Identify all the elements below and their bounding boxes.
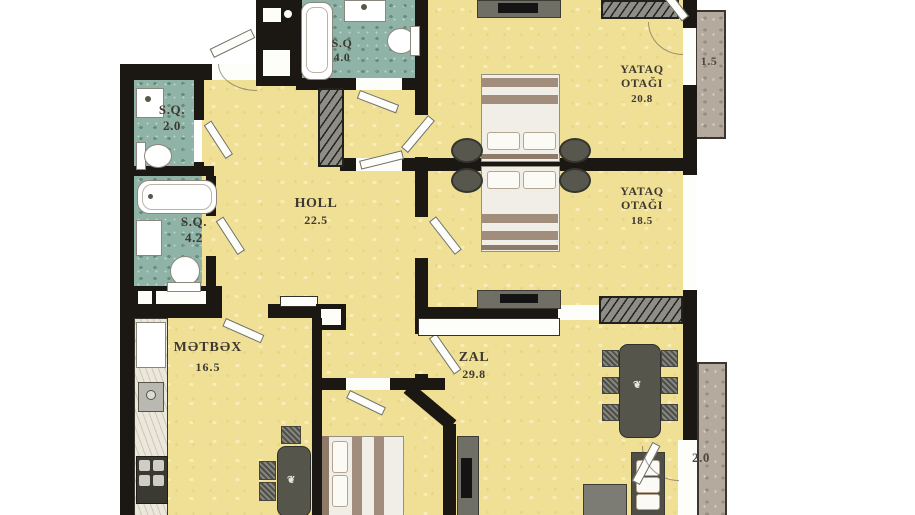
sofa-cushion [636, 494, 660, 510]
chair-icon [259, 482, 276, 501]
room-label-bedroom-mid: YATAQ OTAĞI 18.5 [606, 184, 678, 228]
room-area: 20.8 [606, 93, 678, 106]
room-area: 29.8 [444, 367, 504, 381]
pillow-icon [487, 171, 520, 189]
room-label-sq20: S.Q. 2.0 [148, 102, 196, 133]
bed-headboard [481, 154, 558, 159]
room-name: MƏTBƏX [158, 340, 258, 357]
cabinet-icon [583, 484, 627, 515]
wardrobe-icon [599, 296, 683, 324]
nightstand-icon [451, 168, 483, 193]
room-name: S.Q [318, 36, 366, 50]
wall-ledge [418, 318, 560, 336]
wall [120, 64, 134, 515]
wall [415, 90, 428, 115]
room-name: S.Q. [168, 214, 220, 230]
small-bedroom-door-opening [346, 378, 390, 390]
toilet-icon [144, 144, 172, 168]
room-area: 18.5 [606, 215, 678, 228]
wall [443, 424, 456, 515]
burner-icon [153, 475, 164, 486]
sink-drain [146, 390, 156, 400]
bedroom-mid-south-door-opening [558, 305, 600, 320]
balcony-top-floor [695, 10, 726, 139]
dining-table-icon [619, 344, 661, 438]
chair-icon [602, 350, 619, 367]
balcony-area: 2.0 [684, 450, 718, 466]
vent-circle-icon [284, 10, 292, 18]
room-label-holl: HOLL 22.5 [282, 196, 350, 227]
pocket-door-panel [280, 296, 318, 307]
shaft-niche [138, 291, 152, 304]
bed-blanket-band [481, 231, 558, 240]
room-label-sq42: S.Q. 4.2 [168, 214, 220, 245]
balcony-top-label: 1.5 [694, 54, 724, 68]
tv-icon [498, 3, 538, 13]
room-label-kitchen: MƏTBƏX 16.5 [158, 340, 258, 374]
pillow-icon [523, 171, 556, 189]
room-name: ZAL [444, 350, 504, 367]
wall [683, 290, 697, 440]
chair-icon [661, 350, 678, 367]
nightstand-icon [559, 138, 591, 163]
bed-blanket-band [481, 214, 558, 223]
bed-blanket-band [481, 95, 558, 104]
room-label-bedroom-top: YATAQ OTAĞI 20.8 [606, 62, 678, 106]
table-centerpiece-icon: ❦ [633, 380, 641, 391]
chair-icon [661, 377, 678, 394]
nightstand-icon [451, 138, 483, 163]
pillow-icon [332, 475, 348, 507]
bed-blanket-band [374, 436, 384, 515]
wardrobe-icon [318, 88, 344, 167]
room-name: S.Q. [148, 102, 196, 118]
balcony-bottom-floor [697, 362, 727, 515]
balcony-bottom-label: 2.0 [684, 450, 718, 466]
shaft-niche [263, 50, 290, 76]
room-area: 4.0 [318, 50, 366, 64]
room-label-sq40: S.Q 4.0 [318, 36, 366, 65]
burner-icon [139, 460, 150, 471]
tv-icon [461, 458, 472, 498]
sq40-door-opening [356, 78, 402, 90]
room-area: 22.5 [282, 213, 350, 227]
room-label-zal: ZAL 29.8 [444, 350, 504, 381]
wall [134, 166, 214, 176]
chair-icon [602, 404, 619, 421]
room-name-line1: YATAQ [606, 184, 678, 198]
bed-headboard [322, 436, 329, 515]
pillow-icon [523, 132, 556, 150]
toilet-tank [167, 282, 201, 292]
sink-drain [361, 4, 367, 10]
chair-icon [661, 404, 678, 421]
room-name-line2: OTAĞI [606, 198, 678, 212]
chair-icon [281, 426, 301, 444]
room-name-line2: OTAĞI [606, 76, 678, 90]
nightstand-icon [559, 168, 591, 193]
chair-icon [259, 461, 276, 480]
burner-icon [139, 475, 150, 486]
pillow-icon [332, 441, 348, 473]
bathtub-drain [148, 194, 153, 199]
bed-blanket-band [352, 436, 362, 515]
pocket-door-panel [321, 309, 341, 325]
bedroom-mid-window [684, 175, 696, 290]
toilet-tank [410, 26, 420, 56]
burner-icon [153, 460, 164, 471]
chair-icon [602, 377, 619, 394]
shaft-niche [263, 8, 281, 22]
room-area: 4.2 [168, 230, 220, 246]
pillow-icon [487, 132, 520, 150]
room-name: HOLL [282, 196, 350, 213]
balcony-area: 1.5 [694, 54, 724, 68]
table-centerpiece-icon: ❦ [287, 475, 295, 486]
wall [312, 318, 322, 515]
wall [206, 256, 216, 290]
room-name-line1: YATAQ [606, 62, 678, 76]
room-area: 16.5 [158, 360, 258, 374]
floor-plan: ❦ ❦ S.Q 4.0 S.Q. 2.0 S.Q. 4.2 HOLL [0, 0, 915, 515]
bed-footboard [481, 245, 558, 250]
entrance-door-leaf-icon [210, 29, 256, 58]
bed-blanket-band [481, 78, 558, 87]
shaft-niche [156, 291, 206, 304]
room-area: 2.0 [148, 118, 196, 134]
sink-icon [136, 220, 162, 256]
tv-icon [500, 294, 538, 303]
